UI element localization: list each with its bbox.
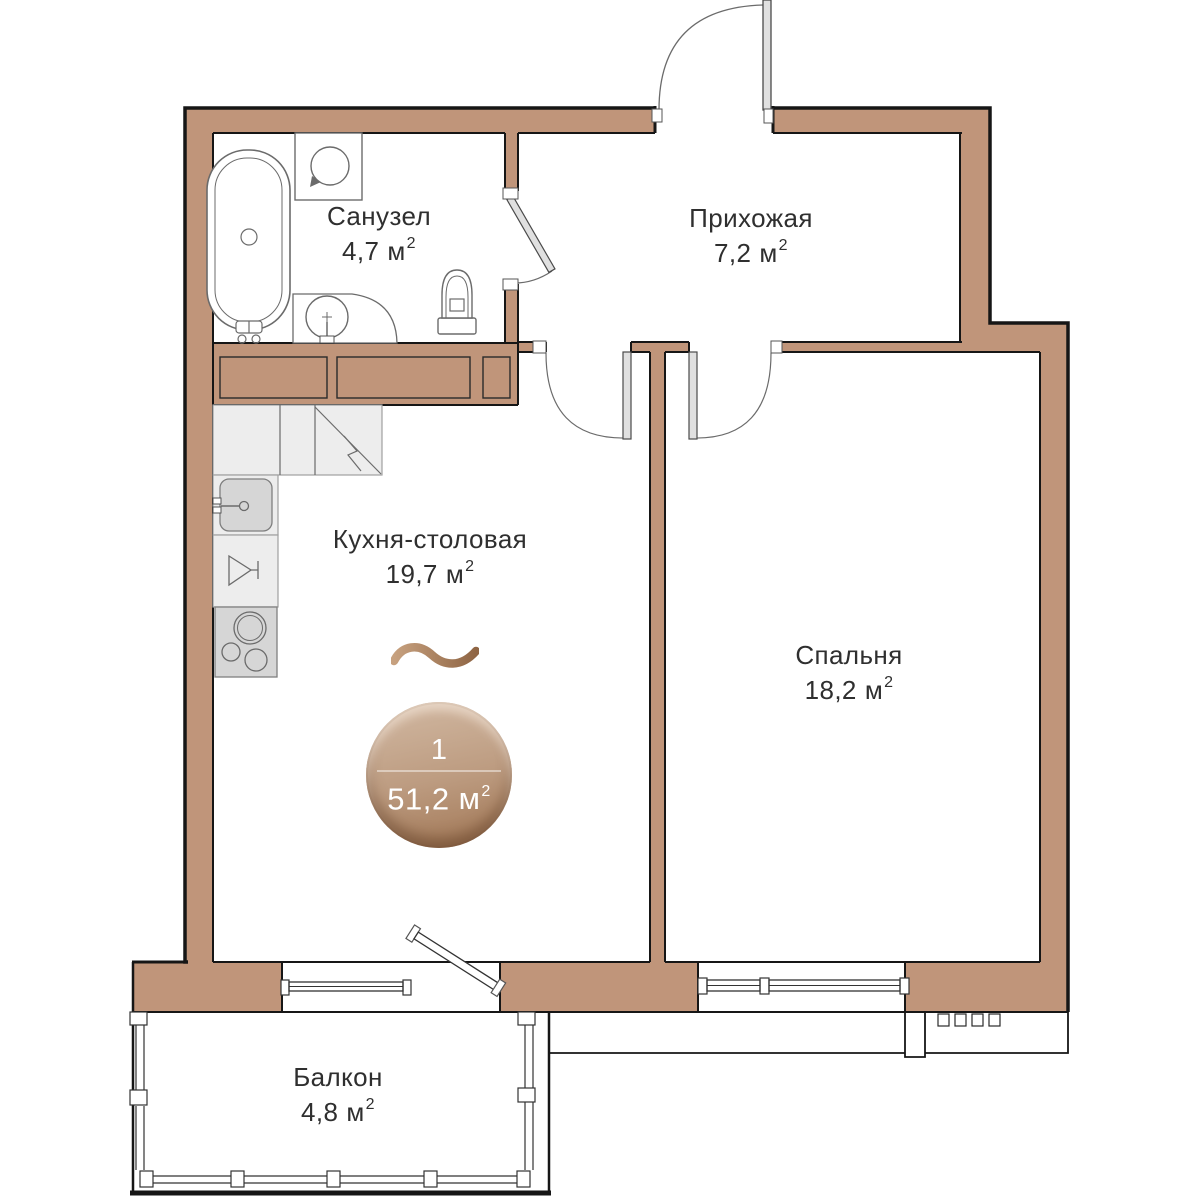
room-label-hallway: Прихожая 7,2м2 <box>689 204 813 268</box>
floor-plan: Санузел 4,7м2 Прихожая 7,2м2 Кухня-столо… <box>0 0 1200 1200</box>
area-value: 4,7 <box>342 236 379 266</box>
room-label-bathroom: Санузел 4,7м2 <box>327 202 431 266</box>
badge-area-sup: 2 <box>481 783 490 800</box>
room-area: 18,2м2 <box>795 670 902 705</box>
room-area: 19,7м2 <box>333 554 527 589</box>
area-unit: м <box>759 238 777 268</box>
bedroom-window <box>698 978 909 994</box>
kitchen-window <box>281 980 411 995</box>
area-value: 19,7 <box>386 559 438 589</box>
area-unit: м <box>346 1097 364 1127</box>
room-name: Прихожая <box>689 204 813 233</box>
badge-area-unit: м <box>459 781 481 816</box>
room-area: 7,2м2 <box>689 233 813 268</box>
logo-tilde-icon <box>391 641 479 671</box>
room-name: Спальня <box>795 641 902 670</box>
toilet-icon <box>438 270 476 334</box>
area-unit: м <box>446 559 464 589</box>
badge-rooms-count: 1 <box>431 735 447 765</box>
area-sup: 2 <box>465 558 474 575</box>
badge-area-value: 51,2 <box>387 781 449 816</box>
room-name: Санузел <box>327 202 431 231</box>
balcony-door <box>406 925 506 997</box>
floor-plan-drawing <box>0 0 1200 1200</box>
washing-machine-icon <box>295 133 362 200</box>
room-label-balcony: Балкон 4,8м2 <box>293 1063 383 1127</box>
area-value: 4,8 <box>301 1097 338 1127</box>
bathtub-icon <box>207 150 290 343</box>
bathroom-door <box>503 188 555 290</box>
badge-total-area: 51,2м2 <box>387 778 491 815</box>
bedroom-door <box>689 341 782 439</box>
area-unit: м <box>865 675 883 705</box>
area-value: 7,2 <box>714 238 751 268</box>
badge-divider <box>377 770 501 772</box>
area-sup: 2 <box>884 674 893 691</box>
exterior-ledge <box>549 1012 1068 1057</box>
washbasin-icon <box>293 294 397 343</box>
room-label-kitchen: Кухня-столовая 19,7м2 <box>333 525 527 589</box>
kitchen-sink-icon <box>213 479 272 531</box>
ventilation-grid <box>938 1014 1000 1026</box>
stove-icon <box>215 607 277 677</box>
area-value: 18,2 <box>805 675 857 705</box>
area-badge: 1 51,2м2 <box>366 702 512 848</box>
room-label-bedroom: Спальня 18,2м2 <box>795 641 902 705</box>
area-unit: м <box>387 236 405 266</box>
kitchen-door <box>533 341 631 439</box>
area-sup: 2 <box>366 1096 375 1113</box>
entrance-door <box>652 0 773 123</box>
area-sup: 2 <box>407 235 416 252</box>
room-area: 4,8м2 <box>293 1092 383 1127</box>
room-area: 4,7м2 <box>327 231 431 266</box>
room-name: Кухня-столовая <box>333 525 527 554</box>
room-name: Балкон <box>293 1063 383 1092</box>
area-sup: 2 <box>779 237 788 254</box>
